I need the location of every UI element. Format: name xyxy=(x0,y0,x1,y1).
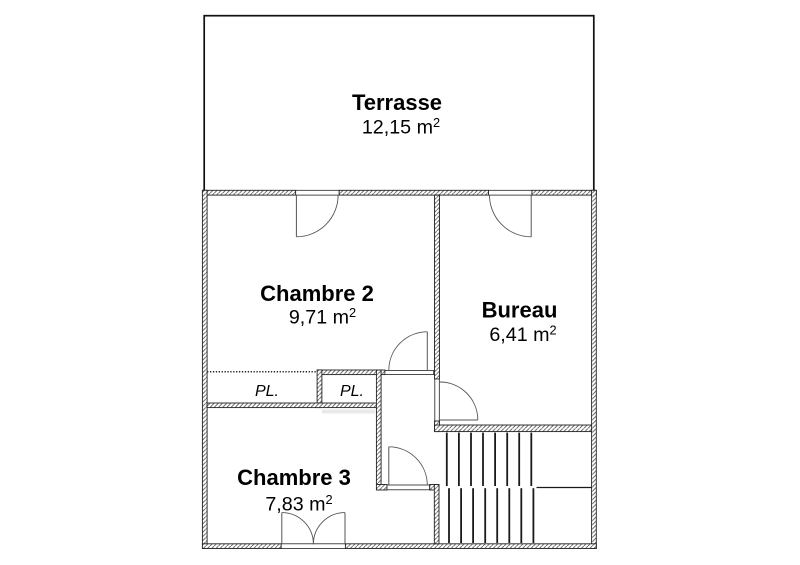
svg-text:12,15 m2: 12,15 m2 xyxy=(362,115,440,138)
svg-text:Terrasse: Terrasse xyxy=(352,90,442,115)
svg-text:Chambre 3: Chambre 3 xyxy=(237,465,351,490)
svg-text:6,41 m2: 6,41 m2 xyxy=(489,323,556,346)
svg-text:Chambre 2: Chambre 2 xyxy=(260,281,374,306)
svg-text:PL.: PL. xyxy=(340,383,364,400)
svg-text:7,83 m2: 7,83 m2 xyxy=(265,492,332,515)
svg-text:PL.: PL. xyxy=(255,383,279,400)
svg-text:9,71 m2: 9,71 m2 xyxy=(289,305,356,328)
svg-text:Bureau: Bureau xyxy=(482,298,558,323)
